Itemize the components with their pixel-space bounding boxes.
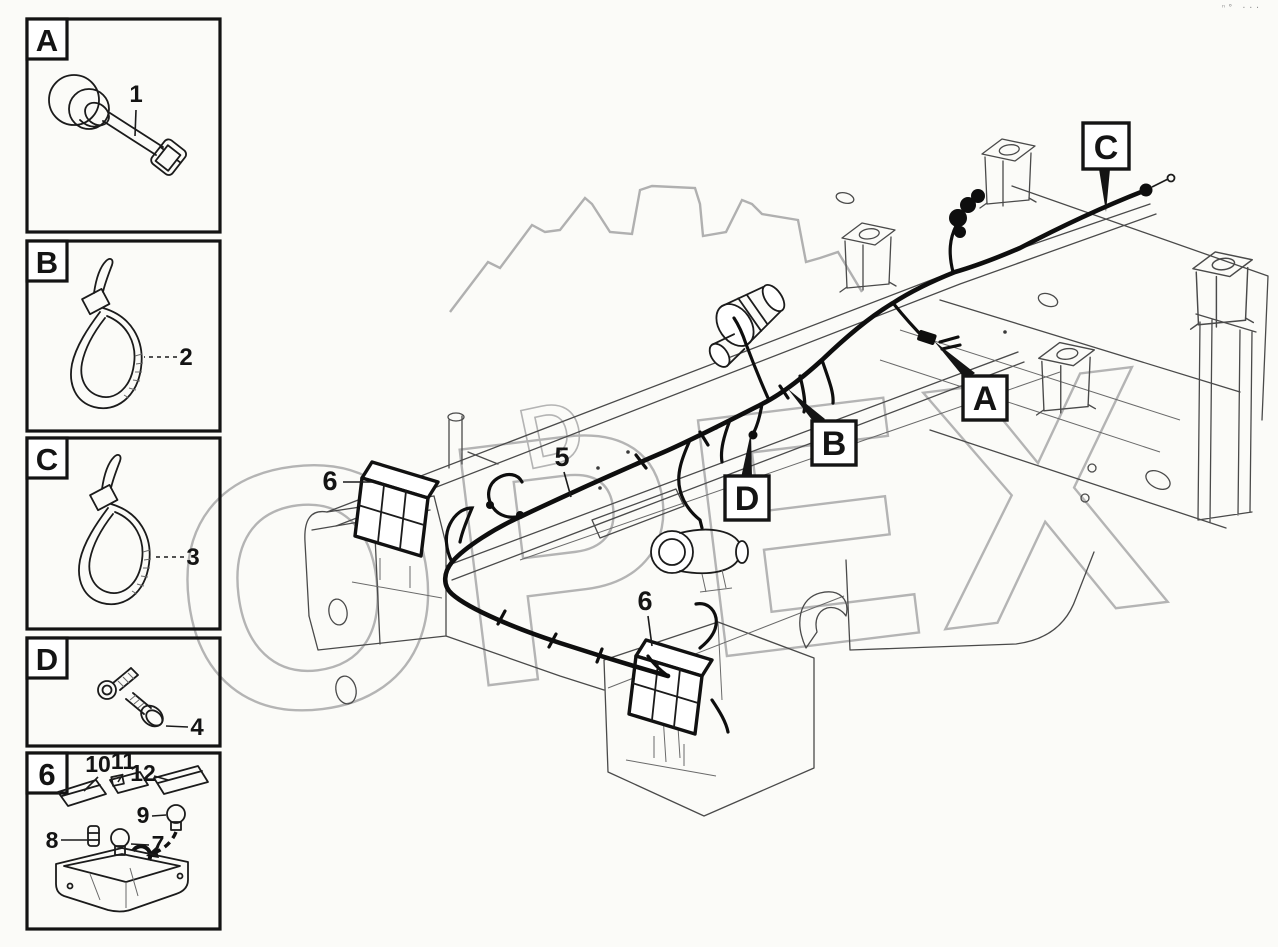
callout-1: 1 (129, 81, 142, 108)
item-label-6-right: 6 (637, 586, 652, 616)
ref-label-d: D (735, 480, 760, 518)
diagram-canvas: ОРЕХ D (0, 0, 1278, 947)
item-label-5: 5 (554, 442, 569, 472)
detail-box-6: 6 10 11 12 (27, 748, 220, 929)
ref-label-c: C (1094, 129, 1119, 167)
detail-tag-d-label: D (36, 642, 58, 677)
ref-label-a: A (973, 380, 998, 418)
callout-3: 3 (186, 544, 199, 571)
part-art-clamp-bolt (98, 668, 167, 731)
corner-print-mark: ⁿ° ··· (1221, 3, 1262, 12)
detail-box-a: A 1 (27, 19, 220, 232)
connector-cluster (949, 189, 985, 238)
part-art-cable-tie-b (71, 259, 143, 408)
callout-7: 7 (152, 831, 165, 857)
part-art-lamp-exploded (56, 766, 208, 912)
item-label-6-left: 6 (322, 466, 337, 496)
callout-8: 8 (46, 827, 59, 853)
callout-12: 12 (130, 760, 156, 786)
detail-tag-a-label: A (36, 23, 58, 58)
detail-tag-b-label: B (36, 245, 58, 280)
part-art-sensor-cable (49, 75, 188, 177)
detail-box-b: B 2 (27, 241, 220, 431)
callout-10: 10 (85, 751, 111, 777)
harness-end-dot (1140, 184, 1153, 197)
callout-2: 2 (179, 344, 192, 371)
callout-4: 4 (190, 714, 204, 741)
detail-tag-c-label: C (36, 442, 58, 477)
detail-tag-6-label: 6 (38, 757, 55, 792)
watermark-gear-icon (450, 186, 862, 312)
callout-9: 9 (137, 802, 150, 828)
parts-diagram-page: ОРЕХ D (0, 0, 1278, 947)
part-art-cable-tie-c (79, 455, 151, 604)
ref-label-b: B (822, 425, 847, 463)
